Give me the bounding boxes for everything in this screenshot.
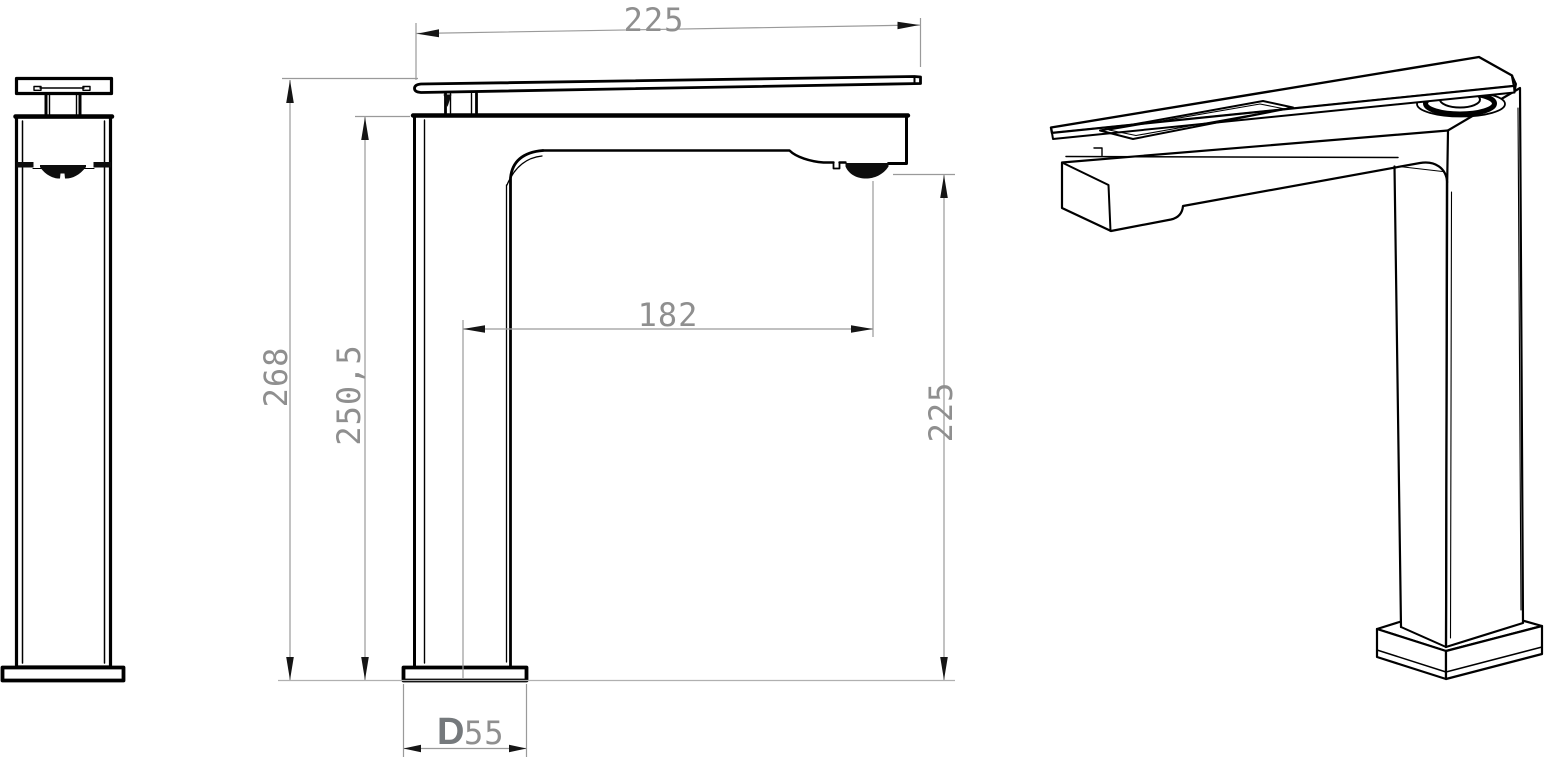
dim-handle-length: 225 xyxy=(624,1,685,39)
faucet-drawing: 225 268 250,5 182 225 D 55 xyxy=(0,0,1550,759)
faucet-side-view xyxy=(3,79,124,681)
side-handle-stem xyxy=(46,95,80,117)
dim-base-size: 55 xyxy=(464,714,505,752)
iso-column-front-right-edge xyxy=(1446,182,1447,647)
front-handle-lever xyxy=(415,77,921,93)
arrowhead xyxy=(417,29,439,37)
front-spout-notch xyxy=(834,163,840,169)
faucet-front-view xyxy=(404,77,921,681)
faucet-isometric-view xyxy=(1051,57,1542,679)
arrowhead xyxy=(286,657,294,680)
side-handle-stem-inner xyxy=(50,95,77,117)
front-column-right-edge xyxy=(511,151,544,668)
front-handle-stem-inner xyxy=(451,94,472,114)
side-handle-plate xyxy=(17,79,112,94)
arrowhead xyxy=(286,80,294,103)
iso-column-right-face xyxy=(1446,88,1523,647)
side-base-plate xyxy=(3,668,124,681)
front-spout-underside xyxy=(543,151,834,163)
dim-spout-reach: 182 xyxy=(638,296,699,334)
arrowhead xyxy=(851,325,873,333)
arrowhead xyxy=(940,657,948,680)
front-base-plate xyxy=(404,668,527,681)
arrowhead xyxy=(898,22,920,30)
front-spout-end-edge xyxy=(889,116,907,164)
dim-spout-outlet-height: 225 xyxy=(922,382,960,443)
arrowhead xyxy=(404,745,422,753)
side-spout-band-left xyxy=(17,162,34,168)
side-spout-band-right xyxy=(94,162,112,168)
dim-spout-top-height: 250,5 xyxy=(330,344,368,445)
iso-column-front-face xyxy=(1395,166,1448,647)
arrowhead xyxy=(940,175,948,198)
arrowhead xyxy=(361,117,369,140)
dim-lines-spout-reach xyxy=(463,181,873,678)
arrowhead xyxy=(509,745,527,753)
technical-drawing-sheet: 225 268 250,5 182 225 D 55 xyxy=(0,0,1550,759)
dim-total-height: 268 xyxy=(257,347,295,408)
arrowhead xyxy=(361,657,369,680)
front-aerator xyxy=(846,163,889,179)
dim-base-prefix: D xyxy=(437,711,464,753)
iso-arm-top-back-edge xyxy=(1066,157,1398,158)
arrowhead xyxy=(463,325,485,333)
iso-spout-arm xyxy=(1062,131,1448,232)
iso-plate-support-tab xyxy=(1094,148,1102,156)
side-body xyxy=(17,117,111,667)
